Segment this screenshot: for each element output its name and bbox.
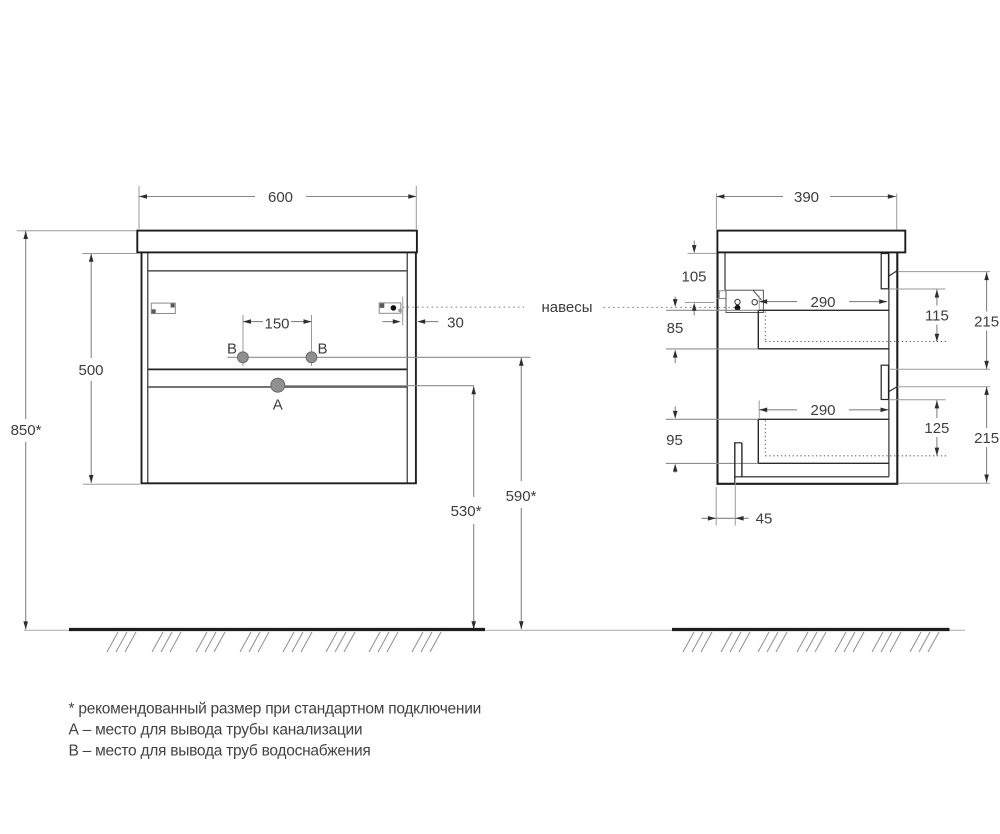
svg-text:290: 290 bbox=[810, 402, 835, 419]
svg-text:530*: 530* bbox=[451, 503, 482, 520]
svg-text:45: 45 bbox=[756, 511, 773, 528]
svg-text:390: 390 bbox=[794, 189, 819, 206]
svg-text:B: B bbox=[227, 341, 237, 358]
svg-text:* рекомендованный размер при с: * рекомендованный размер при стандартном… bbox=[69, 701, 482, 718]
svg-text:95: 95 bbox=[666, 432, 683, 449]
svg-text:125: 125 bbox=[924, 420, 949, 437]
svg-text:600: 600 bbox=[268, 189, 293, 206]
svg-text:30: 30 bbox=[447, 314, 464, 331]
svg-text:215: 215 bbox=[974, 430, 999, 447]
svg-text:590*: 590* bbox=[506, 488, 537, 505]
svg-text:215: 215 bbox=[974, 313, 999, 330]
svg-text:А – место для вывода трубы кан: А – место для вывода трубы канализации bbox=[69, 722, 363, 739]
svg-text:навесы: навесы bbox=[541, 299, 592, 316]
svg-text:115: 115 bbox=[925, 307, 949, 324]
svg-text:500: 500 bbox=[78, 362, 103, 379]
svg-text:A: A bbox=[273, 397, 283, 414]
svg-text:290: 290 bbox=[810, 294, 835, 311]
svg-text:150: 150 bbox=[264, 316, 289, 333]
svg-text:850*: 850* bbox=[11, 422, 42, 439]
svg-text:В – место для вывода труб водо: В – место для вывода труб водоснабжения bbox=[69, 743, 371, 760]
svg-text:85: 85 bbox=[667, 320, 684, 337]
svg-text:B: B bbox=[317, 341, 327, 358]
svg-text:105: 105 bbox=[681, 269, 706, 286]
